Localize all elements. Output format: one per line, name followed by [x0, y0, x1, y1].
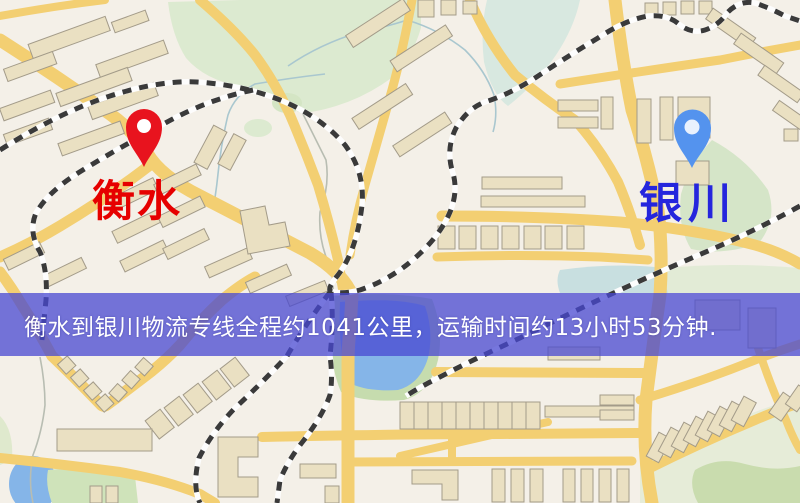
route-info-text: 衡水到银川物流专线全程约1041公里，运输时间约13小时53分钟. [24, 308, 717, 342]
destination-pin-hole [685, 120, 700, 135]
map-screenshot: 衡水 银川 衡水到银川物流专线全程约1041公里，运输时间约13小时53分钟. [0, 0, 800, 503]
origin-city-label: 衡水 [92, 177, 182, 227]
route-info-banner: 衡水到银川物流专线全程约1041公里，运输时间约13小时53分钟. [0, 293, 800, 356]
map-canvas[interactable]: 衡水 银川 [0, 0, 800, 503]
destination-city-label: 银川 [639, 179, 737, 229]
origin-pin-hole [137, 119, 151, 133]
